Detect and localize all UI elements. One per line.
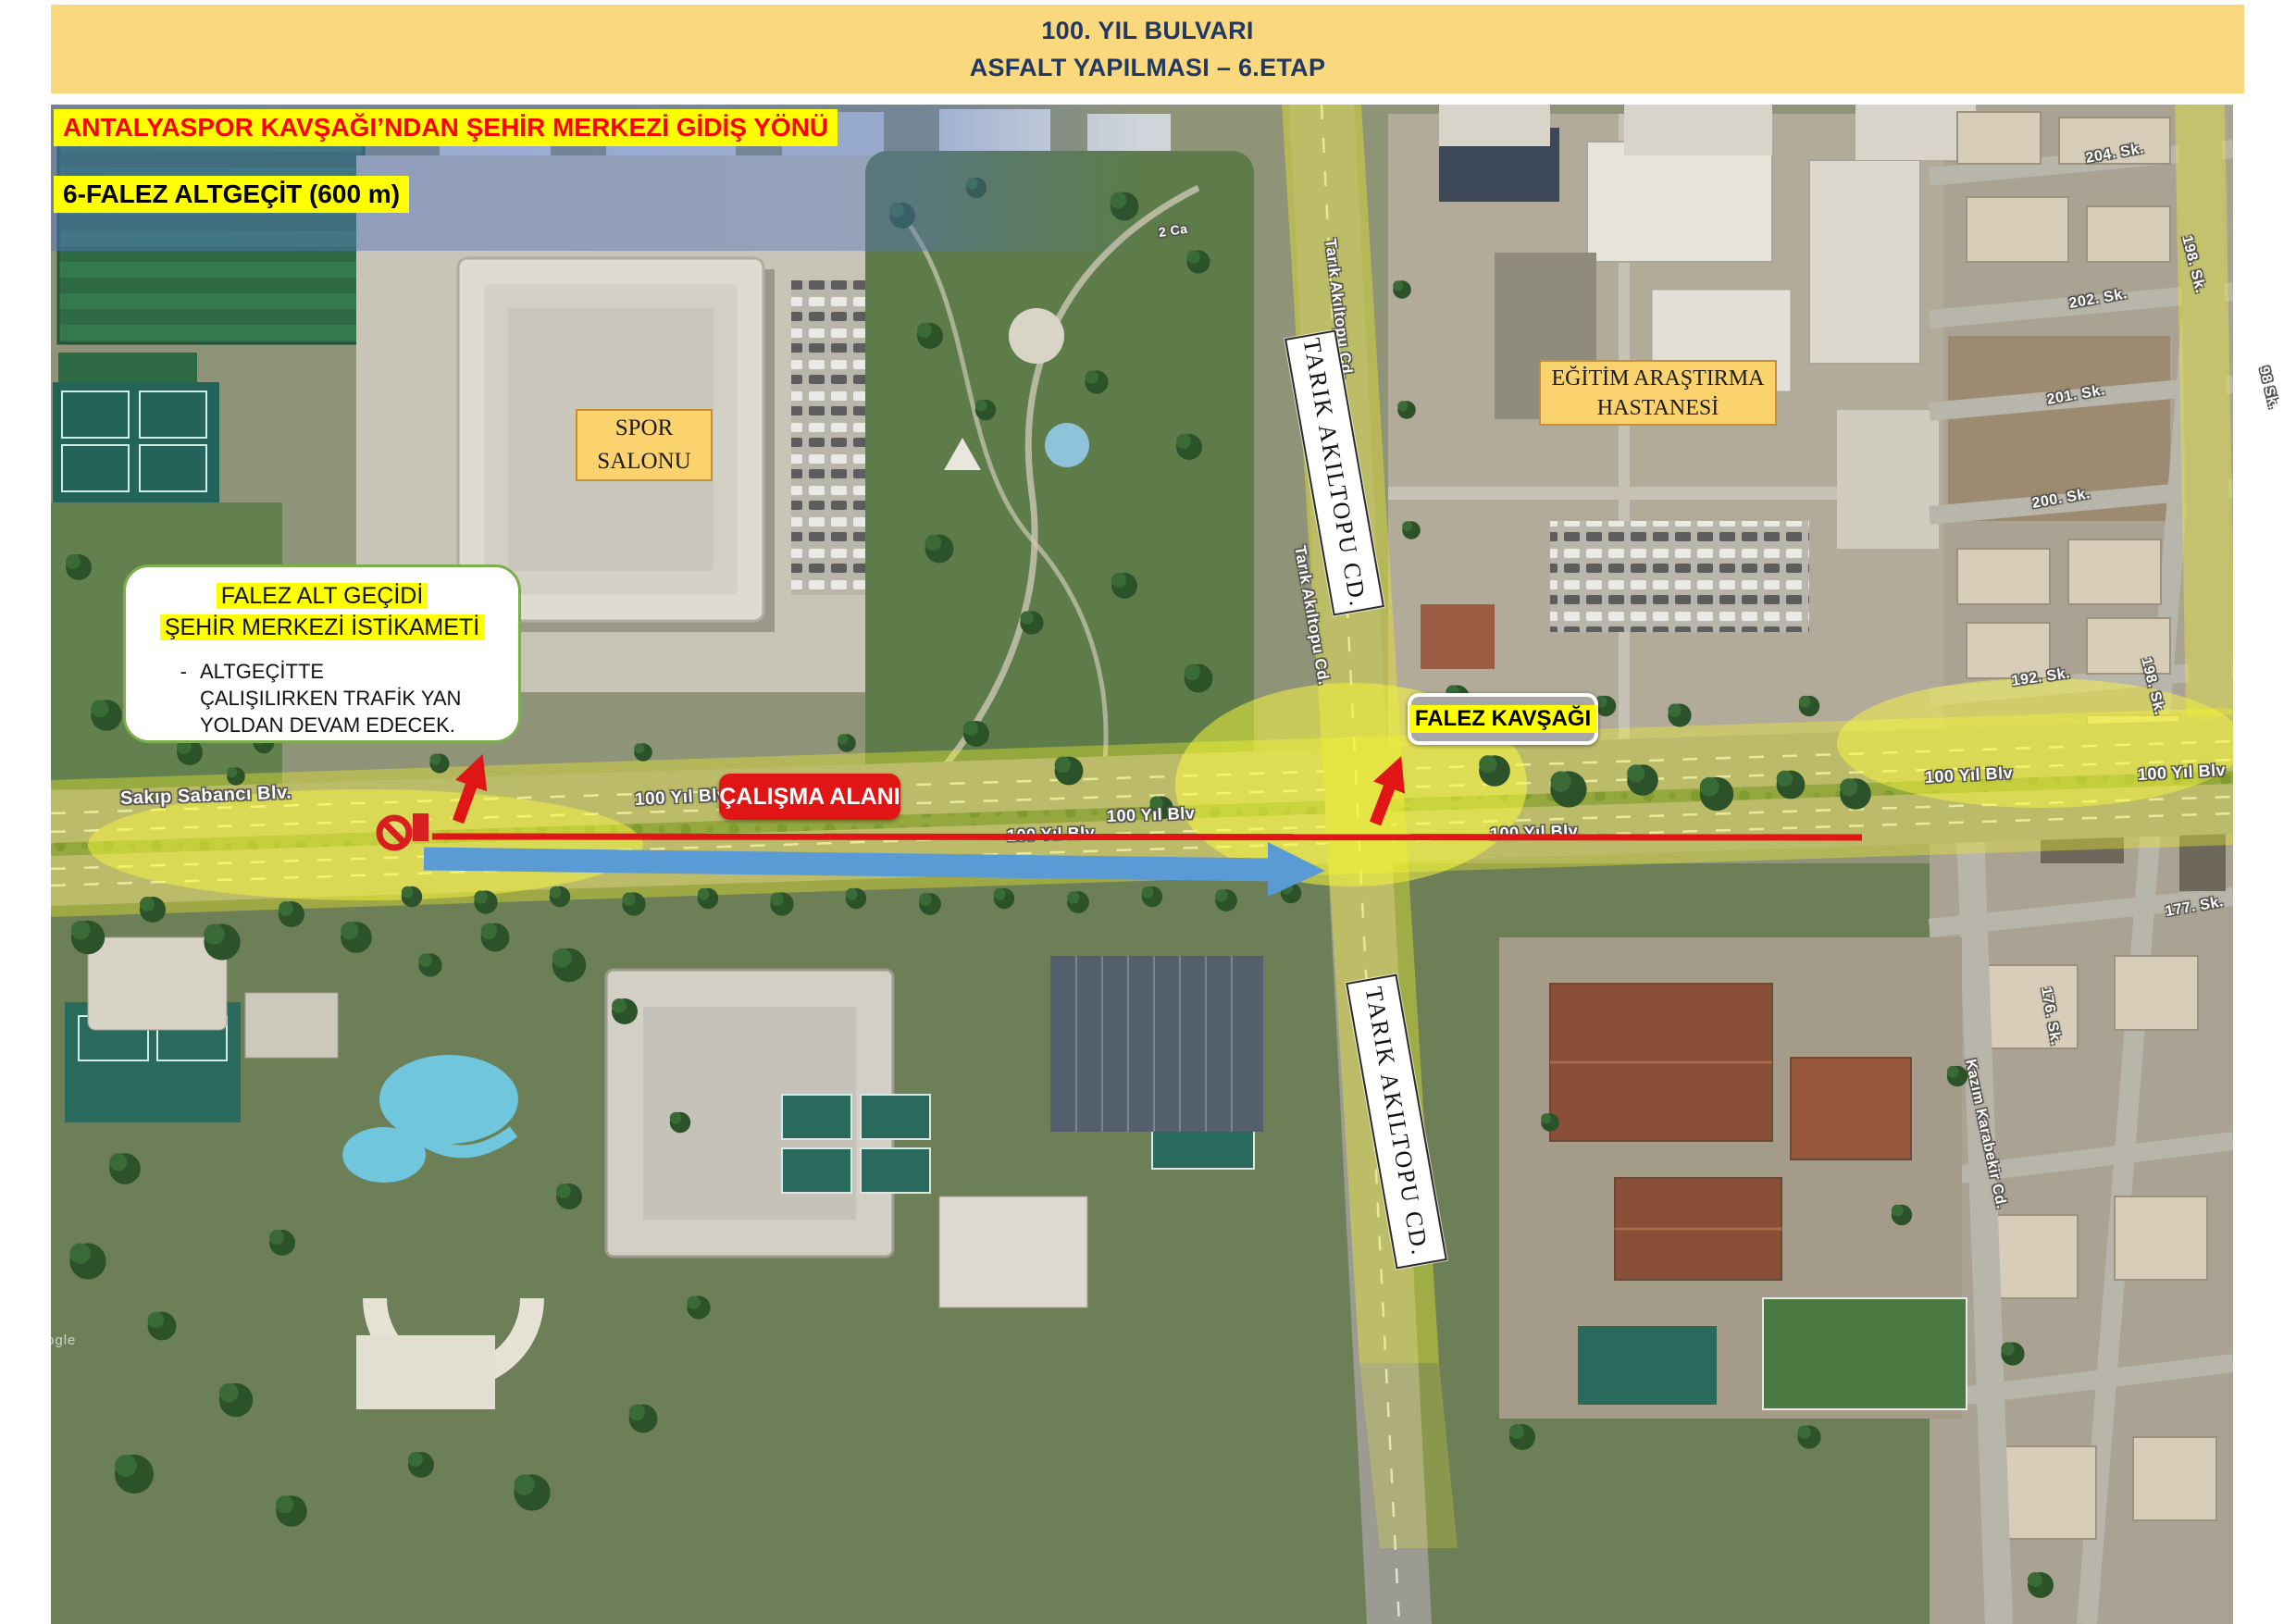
hastane-line1: EĞİTİM ARAŞTIRMA: [1541, 364, 1775, 393]
segment-note: 6-FALEZ ALTGEÇİT (600 m): [54, 176, 409, 213]
bullet-marker: -: [146, 658, 200, 738]
satellite-map-art: [51, 105, 2233, 1624]
title-banner: 100. YIL BULVARI ASFALT YAPILMASI – 6.ET…: [51, 5, 2244, 93]
banner-title-line2: ASFALT YAPILMASI – 6.ETAP: [970, 49, 1326, 86]
direction-note: ANTALYASPOR KAVŞAĞI’NDAN ŞEHİR MERKEZİ G…: [54, 109, 838, 146]
hastane-label: EĞİTİM ARAŞTIRMA HASTANESİ: [1539, 360, 1777, 426]
callout-title-line1: FALEZ ALT GEÇİDİ: [217, 583, 428, 609]
school-campus: [1499, 937, 1967, 1419]
hospital-campus: [1388, 105, 1976, 762]
spor-salonu-line1: SPOR: [577, 412, 711, 445]
falez-kavsagi-label: FALEZ KAVŞAĞI: [1408, 693, 1598, 745]
falez-kavsagi-text: FALEZ KAVŞAĞI: [1409, 705, 1596, 733]
banner-title-line1: 100. YIL BULVARI: [1041, 12, 1253, 49]
spor-salonu-line2: SALONU: [577, 445, 711, 478]
street-label: 98 Sk.: [2256, 365, 2282, 410]
calisma-alani-label: ÇALIŞMA ALANI: [719, 774, 900, 820]
hastane-line2: HASTANESİ: [1541, 393, 1775, 423]
callout-title: FALEZ ALT GEÇİDİ ŞEHİR MERKEZİ İSTİKAMET…: [135, 580, 509, 643]
callout-bullet: - ALTGEÇİTTE ÇALIŞILIRKEN TRAFİK YAN YOL…: [135, 658, 509, 738]
info-callout: FALEZ ALT GEÇİDİ ŞEHİR MERKEZİ İSTİKAMET…: [123, 564, 521, 743]
bullet-text: ALTGEÇİTTE ÇALIŞILIRKEN TRAFİK YAN YOLDA…: [200, 658, 466, 738]
callout-title-line2: ŞEHİR MERKEZİ İSTİKAMETİ: [160, 614, 484, 640]
spor-salonu-label: SPOR SALONU: [576, 409, 713, 481]
satellite-map: [51, 105, 2233, 1624]
